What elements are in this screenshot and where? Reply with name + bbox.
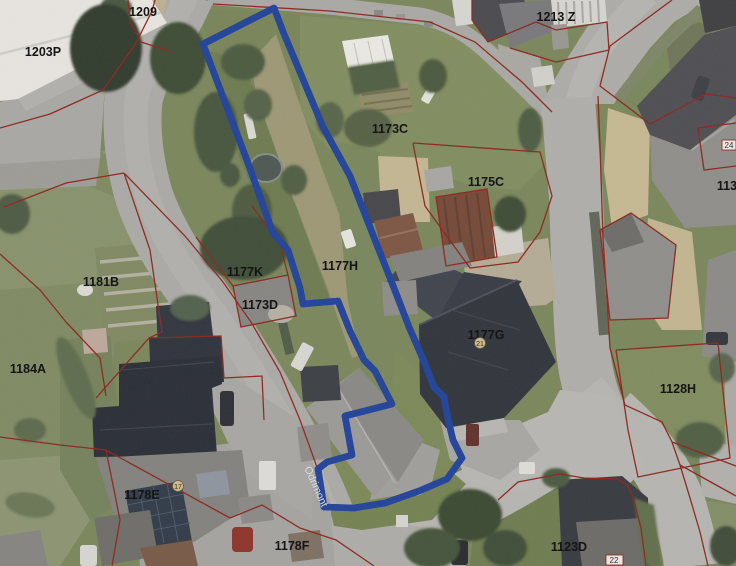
- svg-text:1178E: 1178E: [124, 488, 159, 502]
- svg-text:1173C: 1173C: [372, 122, 408, 136]
- svg-text:1128H: 1128H: [660, 382, 696, 396]
- svg-text:1203P: 1203P: [25, 45, 61, 59]
- svg-text:1213 Z: 1213 Z: [537, 10, 576, 24]
- svg-text:22: 22: [610, 556, 619, 565]
- svg-text:24: 24: [725, 141, 734, 150]
- svg-text:1123D: 1123D: [551, 540, 587, 554]
- svg-text:21: 21: [476, 341, 484, 348]
- svg-text:1184A: 1184A: [10, 362, 46, 376]
- svg-text:17: 17: [174, 484, 182, 491]
- svg-text:1173D: 1173D: [242, 298, 278, 312]
- svg-text:1175C: 1175C: [468, 175, 504, 189]
- svg-text:113: 113: [717, 179, 736, 193]
- svg-text:1181B: 1181B: [83, 275, 119, 289]
- svg-text:1177K: 1177K: [227, 265, 263, 279]
- svg-text:1177H: 1177H: [322, 259, 358, 273]
- svg-text:1178F: 1178F: [275, 539, 310, 553]
- svg-text:1209: 1209: [129, 5, 157, 19]
- svg-text:1177G: 1177G: [468, 328, 505, 342]
